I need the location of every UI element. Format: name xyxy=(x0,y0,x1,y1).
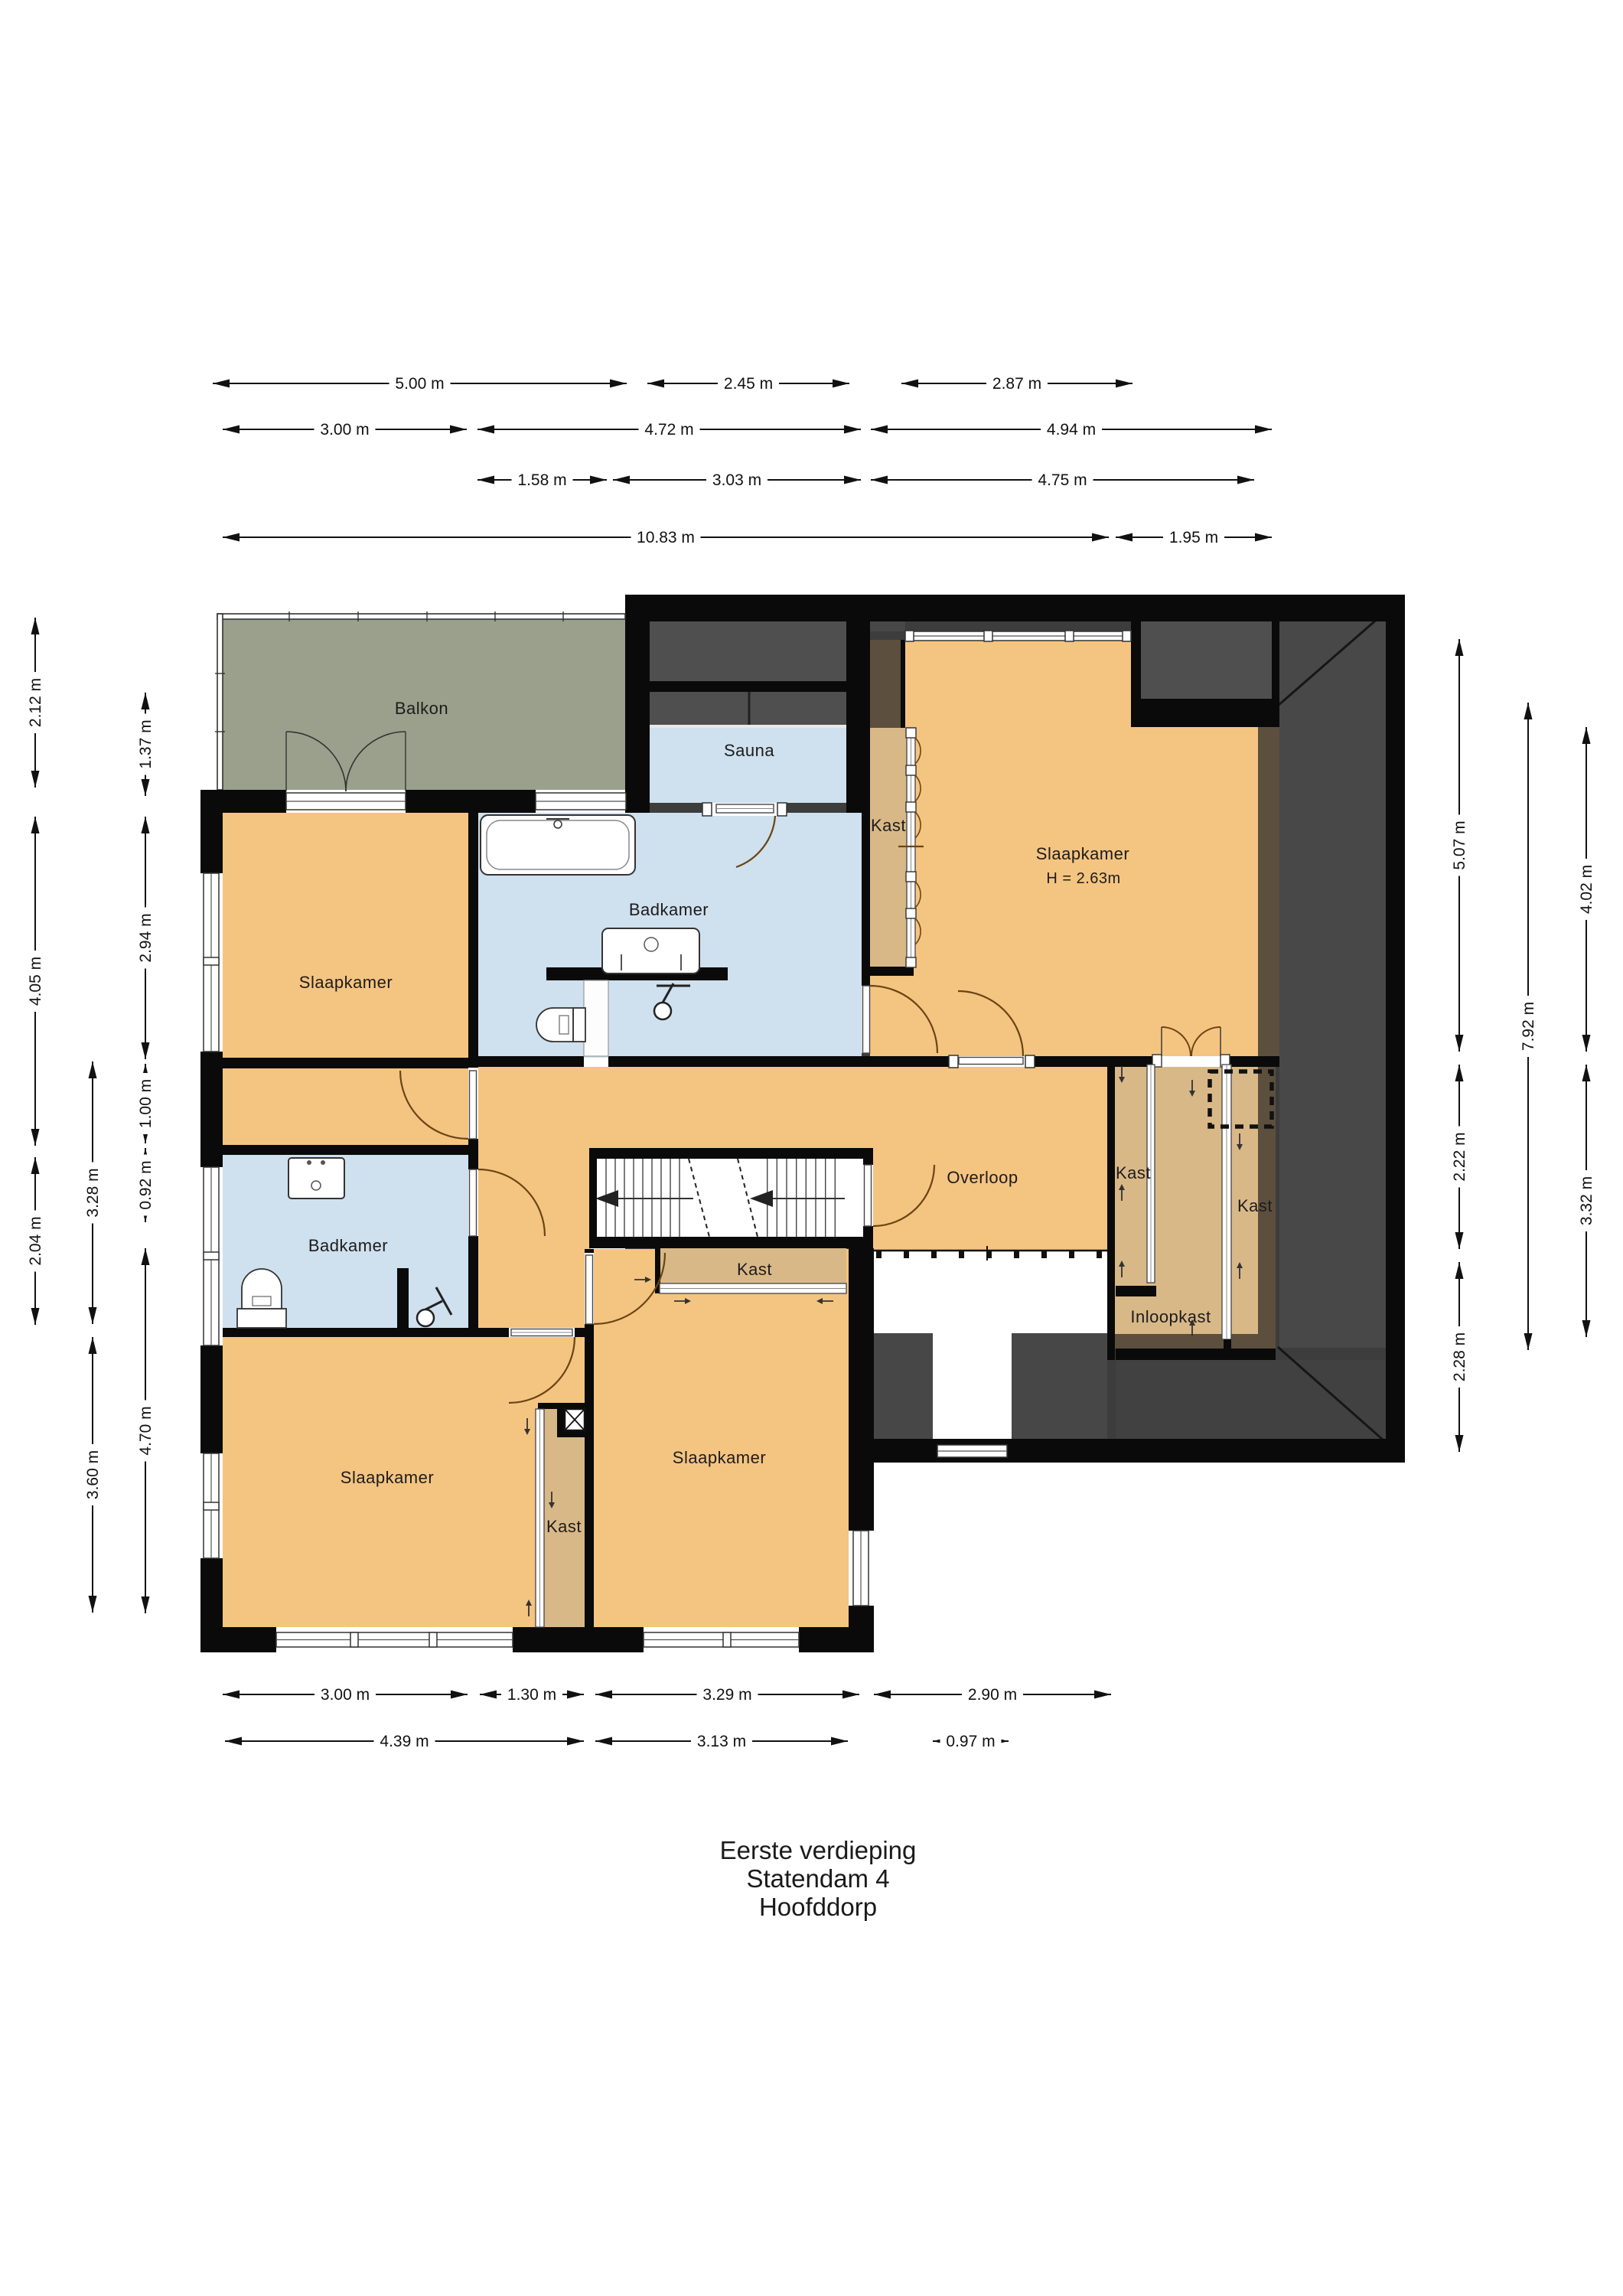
svg-text:1.95 m: 1.95 m xyxy=(1169,529,1218,546)
svg-text:1.58 m: 1.58 m xyxy=(517,471,566,489)
svg-text:2.04 m: 2.04 m xyxy=(27,1216,44,1265)
svg-text:0.92 m: 0.92 m xyxy=(137,1160,155,1209)
svg-text:7.92 m: 7.92 m xyxy=(1520,1002,1537,1051)
svg-text:4.75 m: 4.75 m xyxy=(1038,471,1087,489)
svg-text:4.72 m: 4.72 m xyxy=(644,421,693,439)
svg-text:Badkamer: Badkamer xyxy=(629,900,709,919)
svg-text:Kast: Kast xyxy=(737,1260,772,1279)
svg-text:3.13 m: 3.13 m xyxy=(697,1733,746,1750)
svg-text:H = 2.63m: H = 2.63m xyxy=(1046,870,1120,887)
svg-text:4.02 m: 4.02 m xyxy=(1578,865,1595,914)
svg-text:Balkon: Balkon xyxy=(395,699,448,718)
svg-text:Statendam 4: Statendam 4 xyxy=(746,1864,889,1893)
svg-text:3.28 m: 3.28 m xyxy=(84,1168,102,1217)
svg-text:2.45 m: 2.45 m xyxy=(724,375,773,393)
svg-text:Badkamer: Badkamer xyxy=(308,1236,388,1255)
svg-text:Overloop: Overloop xyxy=(947,1168,1018,1187)
svg-text:2.94 m: 2.94 m xyxy=(137,913,155,962)
svg-text:Inloopkast: Inloopkast xyxy=(1130,1307,1211,1326)
svg-text:3.00 m: 3.00 m xyxy=(320,421,369,439)
svg-text:3.00 m: 3.00 m xyxy=(321,1686,370,1704)
svg-text:Kast: Kast xyxy=(546,1517,582,1536)
svg-text:5.00 m: 5.00 m xyxy=(395,375,444,393)
svg-text:10.83 m: 10.83 m xyxy=(637,529,695,546)
svg-text:Slaapkamer: Slaapkamer xyxy=(1036,844,1129,863)
svg-text:3.29 m: 3.29 m xyxy=(702,1686,751,1704)
svg-text:3.60 m: 3.60 m xyxy=(84,1450,102,1499)
svg-text:3.03 m: 3.03 m xyxy=(712,471,761,489)
svg-text:4.05 m: 4.05 m xyxy=(27,957,44,1006)
svg-text:4.94 m: 4.94 m xyxy=(1047,421,1096,439)
svg-text:1.30 m: 1.30 m xyxy=(507,1686,556,1704)
svg-text:2.12 m: 2.12 m xyxy=(27,678,44,727)
svg-text:Slaapkamer: Slaapkamer xyxy=(341,1468,434,1487)
svg-text:4.70 m: 4.70 m xyxy=(137,1406,155,1455)
svg-text:Kast: Kast xyxy=(1237,1196,1273,1215)
svg-text:Slaapkamer: Slaapkamer xyxy=(299,973,393,992)
svg-text:Hoofddorp: Hoofddorp xyxy=(759,1893,877,1921)
svg-text:2.87 m: 2.87 m xyxy=(992,375,1041,393)
svg-text:1.37 m: 1.37 m xyxy=(137,719,155,768)
svg-text:0.97 m: 0.97 m xyxy=(946,1733,995,1750)
svg-text:2.90 m: 2.90 m xyxy=(968,1686,1017,1704)
svg-text:Kast: Kast xyxy=(871,816,906,835)
svg-text:4.39 m: 4.39 m xyxy=(380,1733,429,1750)
svg-text:Eerste verdieping: Eerste verdieping xyxy=(720,1836,917,1864)
svg-text:2.28 m: 2.28 m xyxy=(1451,1332,1468,1381)
svg-text:5.07 m: 5.07 m xyxy=(1451,820,1468,869)
svg-text:Kast: Kast xyxy=(1116,1163,1151,1182)
svg-text:Sauna: Sauna xyxy=(724,741,774,760)
svg-text:2.22 m: 2.22 m xyxy=(1451,1132,1468,1181)
svg-text:Slaapkamer: Slaapkamer xyxy=(673,1448,766,1467)
svg-text:3.32 m: 3.32 m xyxy=(1578,1176,1595,1225)
svg-text:1.00 m: 1.00 m xyxy=(137,1079,155,1128)
